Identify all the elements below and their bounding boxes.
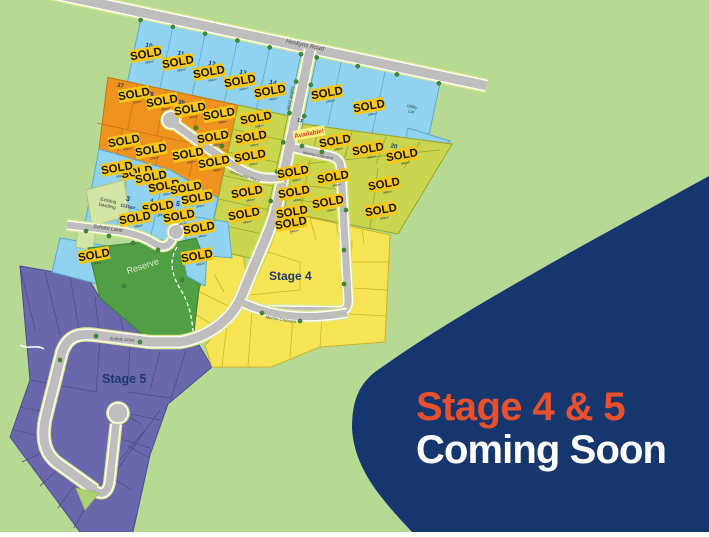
svg-text:Stage 4 & 5: Stage 4 & 5 xyxy=(416,385,625,429)
svg-text:Stage 5: Stage 5 xyxy=(102,372,147,386)
svg-text:Stage 4: Stage 4 xyxy=(269,269,312,283)
svg-text:Coming Soon: Coming Soon xyxy=(416,428,666,472)
